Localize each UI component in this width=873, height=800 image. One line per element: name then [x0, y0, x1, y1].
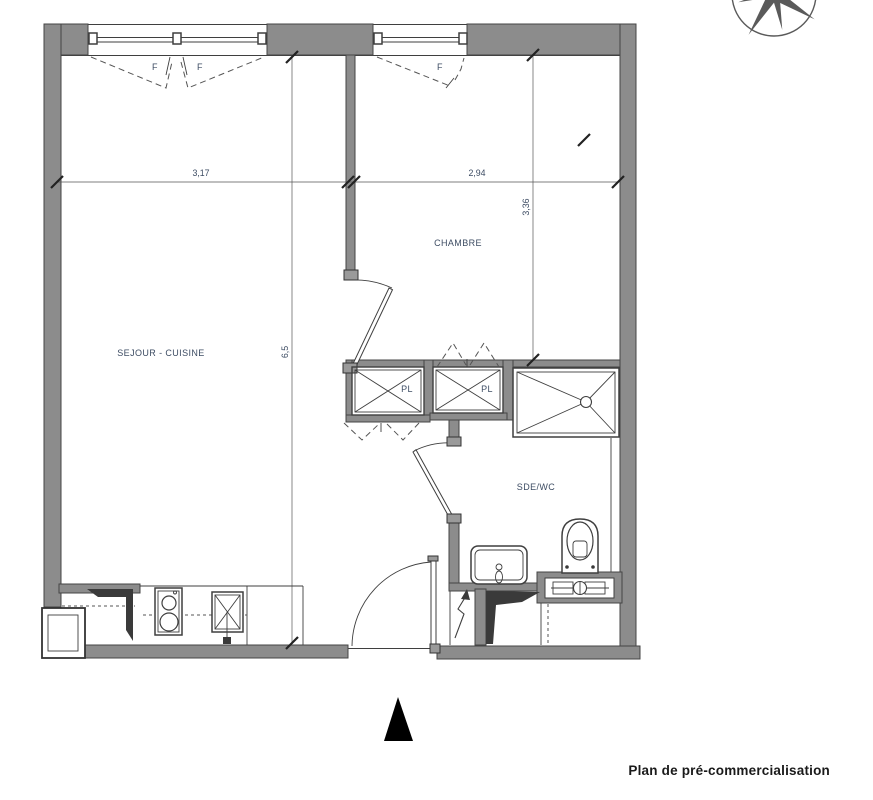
- closet-label-left: PL: [401, 384, 413, 394]
- toilet-bolt: [565, 565, 569, 569]
- wall-tech-divider: [475, 589, 486, 645]
- counter-corner-stroke: [87, 589, 133, 641]
- closet-label-right: PL: [481, 384, 493, 394]
- wall-divider-living-bedroom: [346, 55, 355, 272]
- corner-duct-box: [42, 608, 85, 658]
- duct-box-outer: [42, 608, 85, 658]
- closet-door-dashed: [344, 423, 419, 440]
- wall-segment: [430, 413, 507, 420]
- kitchen-counter: [62, 586, 303, 645]
- door-leaf: [351, 288, 393, 370]
- dim-label-living-width: 3,17: [192, 168, 209, 178]
- floor-plan-drawing: SEJOUR - CUISINE CHAMBRE SDE/WC PL PL F …: [0, 0, 873, 800]
- wall-right: [620, 24, 636, 659]
- room-label-bedroom: CHAMBRE: [434, 238, 482, 248]
- wall-bottom-right: [437, 646, 640, 659]
- window-leaf-tick: [446, 78, 454, 88]
- window-jamb: [89, 33, 97, 44]
- window-jamb: [374, 33, 382, 44]
- plan-labels: SEJOUR - CUISINE CHAMBRE SDE/WC PL PL F …: [117, 62, 555, 492]
- door-hinge: [344, 270, 358, 280]
- door-swing-arc: [352, 562, 431, 646]
- electric-riser-arrow: [455, 596, 466, 638]
- room-label-bathroom: SDE/WC: [517, 482, 556, 492]
- wall-segment: [503, 360, 513, 420]
- walls: [44, 24, 640, 659]
- window-label-f: F: [197, 62, 203, 72]
- door-leaf-cap: [428, 556, 438, 561]
- dim-label-bedroom-width: 2,94: [468, 168, 485, 178]
- plan-caption: Plan de pré-commercialisation: [628, 763, 830, 778]
- sink-faucet-base: [223, 637, 231, 644]
- compass-rose-icon: [708, 0, 840, 60]
- door-hinge: [447, 514, 461, 523]
- toilet-bolt: [591, 565, 595, 569]
- washbasin-outer: [471, 546, 527, 584]
- wall-segment: [346, 415, 430, 422]
- duct-shading: [486, 591, 540, 644]
- door-entry: [352, 556, 440, 653]
- door-leaf: [431, 560, 436, 645]
- window-living: [89, 33, 266, 88]
- washbasin: [471, 546, 527, 584]
- north-arrow-icon: [384, 697, 413, 741]
- door-leaf: [413, 450, 454, 520]
- shower-outer: [513, 368, 619, 437]
- door-bedroom: [343, 270, 393, 373]
- dim-label-bedroom-depth: 3,36: [521, 198, 531, 215]
- window-label-f: F: [152, 62, 158, 72]
- closet-left: [344, 367, 424, 440]
- room-label-living: SEJOUR - CUISINE: [117, 348, 204, 358]
- floor-plan-page: SEJOUR - CUISINE CHAMBRE SDE/WC PL PL F …: [0, 0, 873, 800]
- wall-bottom-left: [84, 645, 348, 658]
- stove-outer: [155, 588, 182, 635]
- window-mullion: [173, 33, 181, 44]
- door-hinge: [447, 437, 461, 446]
- window-swing-dashed: [91, 57, 264, 88]
- compass-star: [708, 0, 840, 60]
- compass-ray: [744, 0, 778, 37]
- door-bathroom: [413, 437, 461, 523]
- window-jamb: [459, 33, 467, 44]
- shower-drain: [581, 397, 592, 408]
- door-hinge: [430, 644, 440, 653]
- wall-segment: [449, 523, 459, 591]
- wall-face-lines: [44, 25, 636, 649]
- compass-circle: [732, 0, 816, 36]
- window-jamb: [258, 33, 266, 44]
- wall-left: [44, 24, 61, 607]
- wall-segment: [267, 24, 373, 55]
- dim-tick: [578, 134, 590, 146]
- dim-label-living-depth: 6,5: [280, 346, 290, 358]
- toilet-area: [537, 519, 622, 644]
- window-label-f: F: [437, 62, 443, 72]
- technical-closets: [450, 589, 541, 645]
- wall-segment: [467, 24, 636, 55]
- closet-right: [433, 343, 503, 413]
- wall-closet-row-top: [346, 360, 620, 367]
- window-bedroom: [374, 33, 467, 88]
- wall-segment: [424, 360, 433, 420]
- door-swing-arc: [351, 280, 392, 288]
